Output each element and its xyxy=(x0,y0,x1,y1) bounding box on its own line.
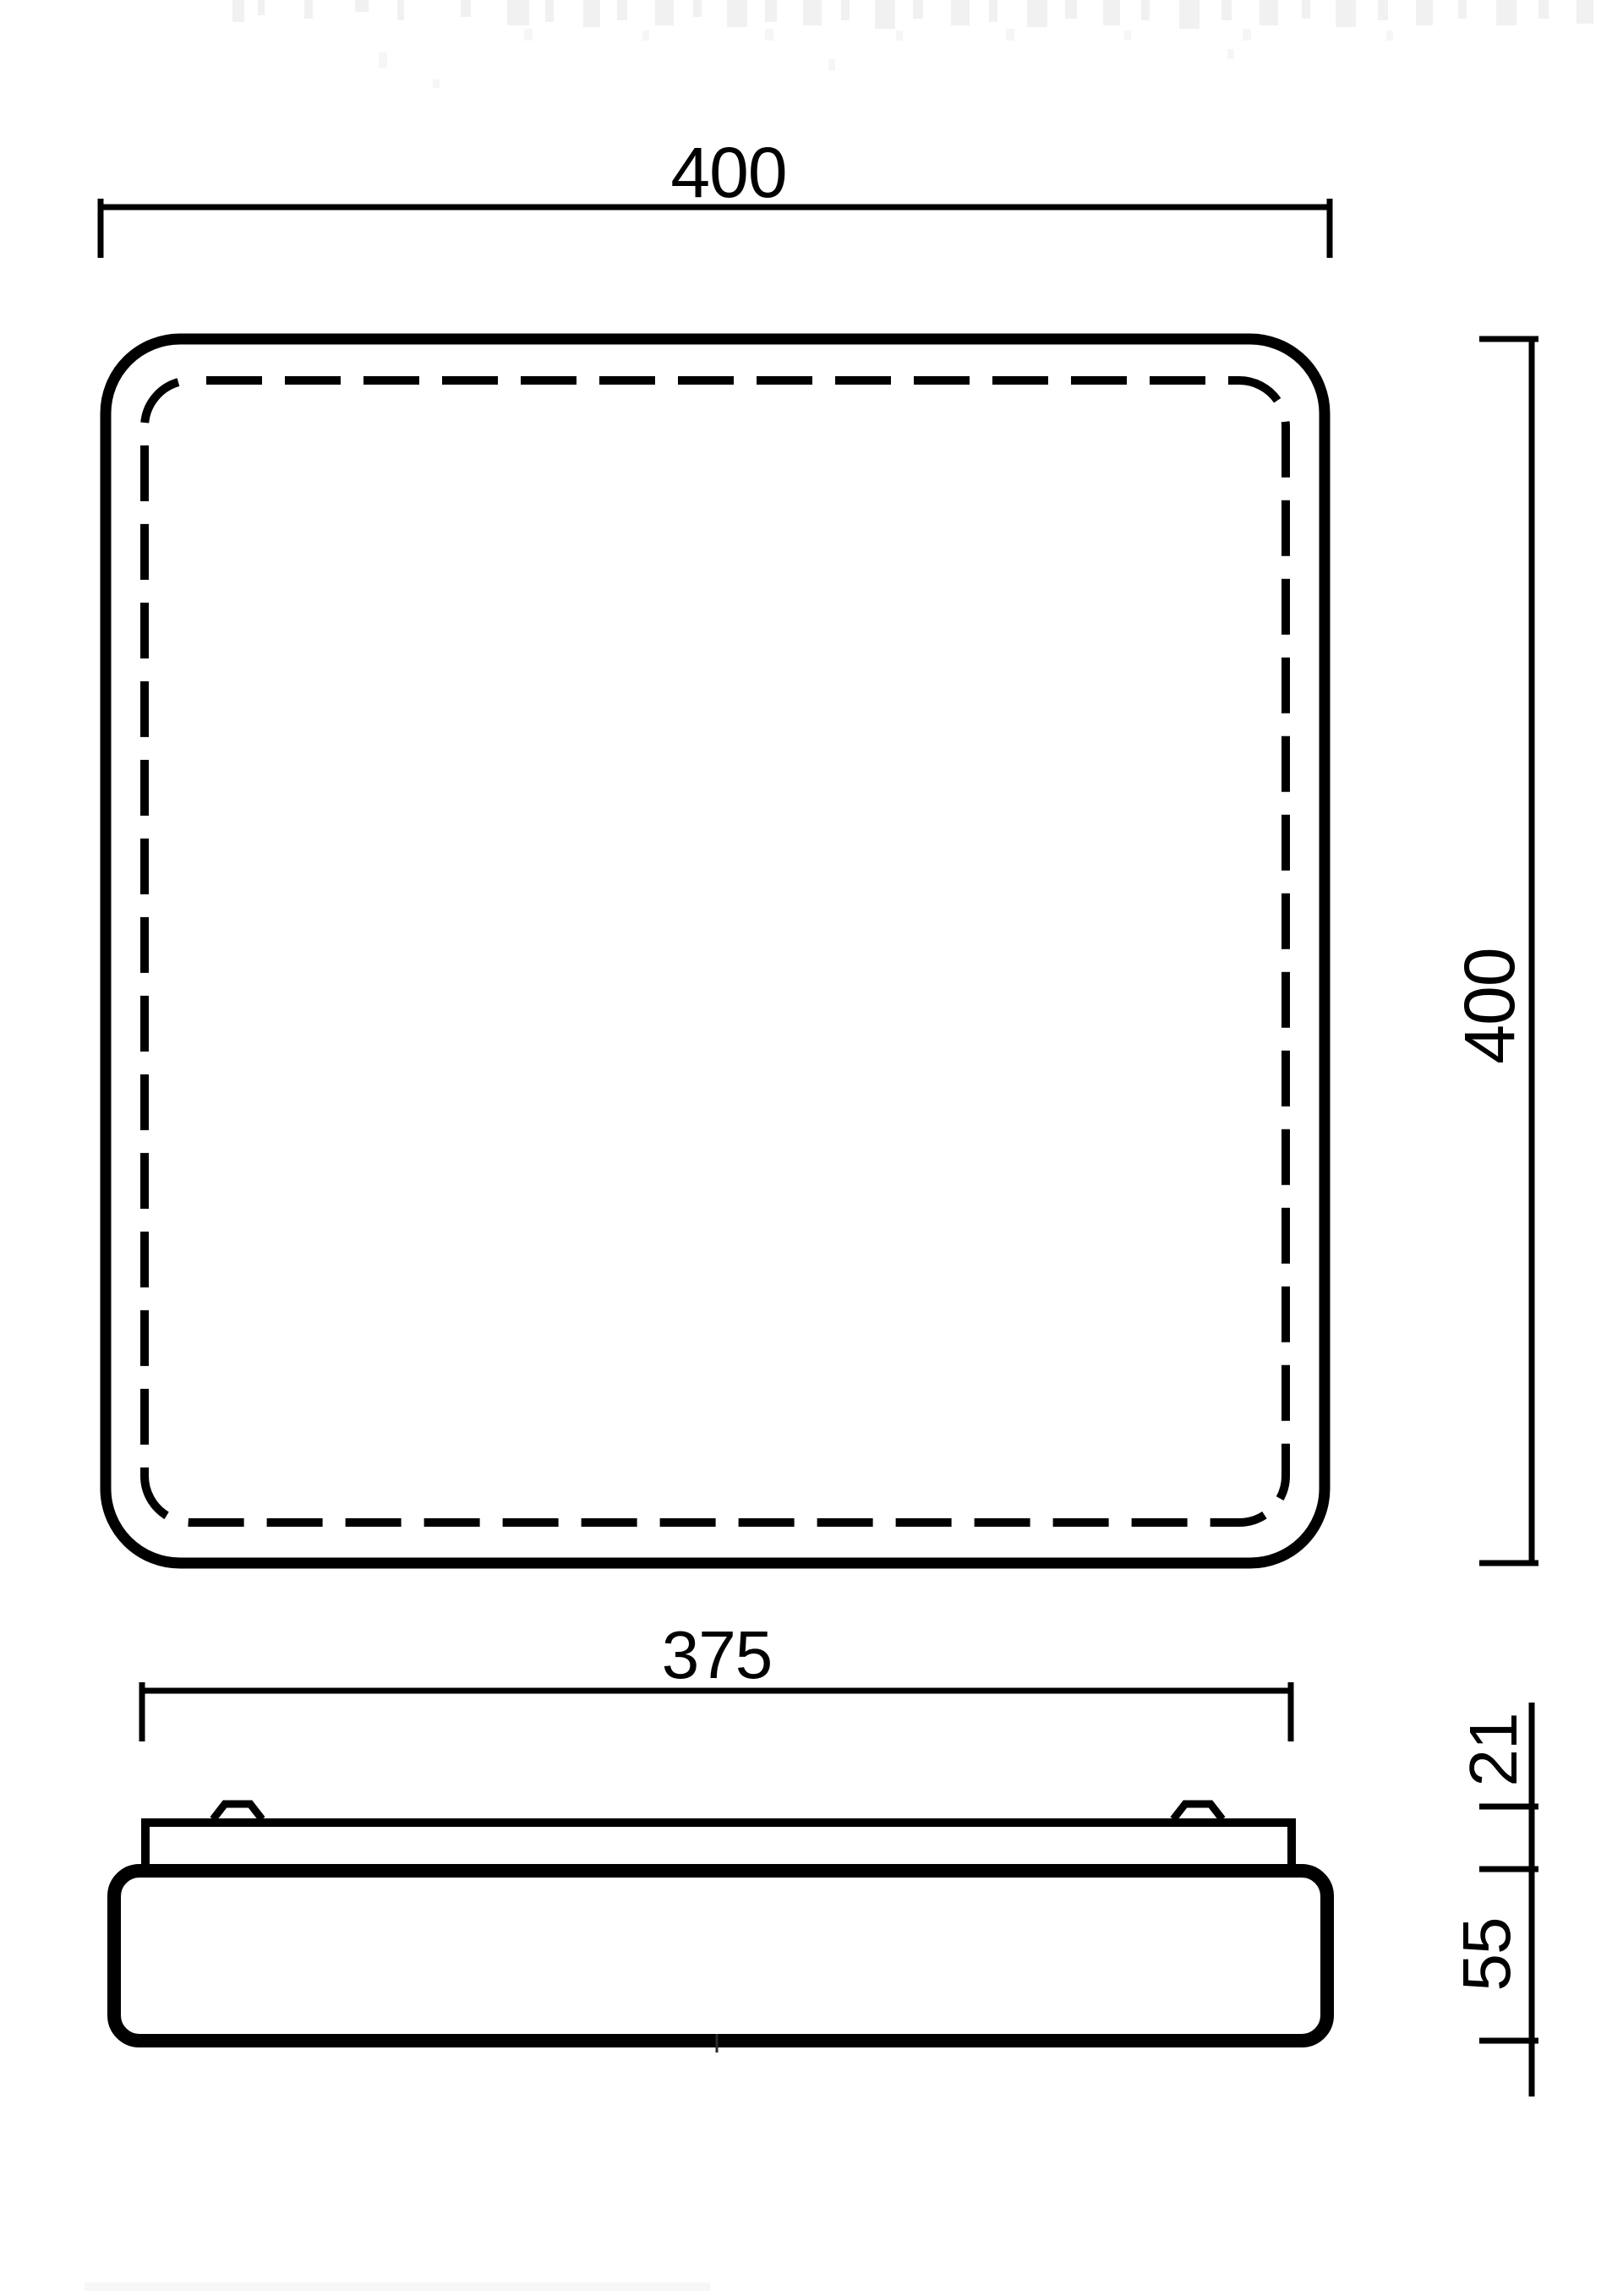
dim-label-backplate-width: 375 xyxy=(662,1617,772,1692)
top-view-housing-outline xyxy=(106,339,1325,1563)
top-view xyxy=(106,339,1325,1563)
technical-drawing: 400 400 375 xyxy=(0,0,1623,2296)
dim-label-overall-width: 400 xyxy=(670,133,786,212)
side-view-mounting-clip-right xyxy=(1173,1804,1222,1819)
side-view xyxy=(114,1804,1327,2053)
dim-label-body-height: 55 xyxy=(1449,1918,1524,1992)
side-view-backplate xyxy=(145,1823,1292,1870)
dim-label-overall-height: 400 xyxy=(1450,948,1529,1063)
drawing-canvas: 400 400 375 xyxy=(0,0,1623,2296)
dim-label-backplate-height: 21 xyxy=(1456,1714,1531,1787)
side-view-mounting-clip-left xyxy=(213,1804,262,1819)
side-view-diffuser-body xyxy=(114,1871,1327,2041)
